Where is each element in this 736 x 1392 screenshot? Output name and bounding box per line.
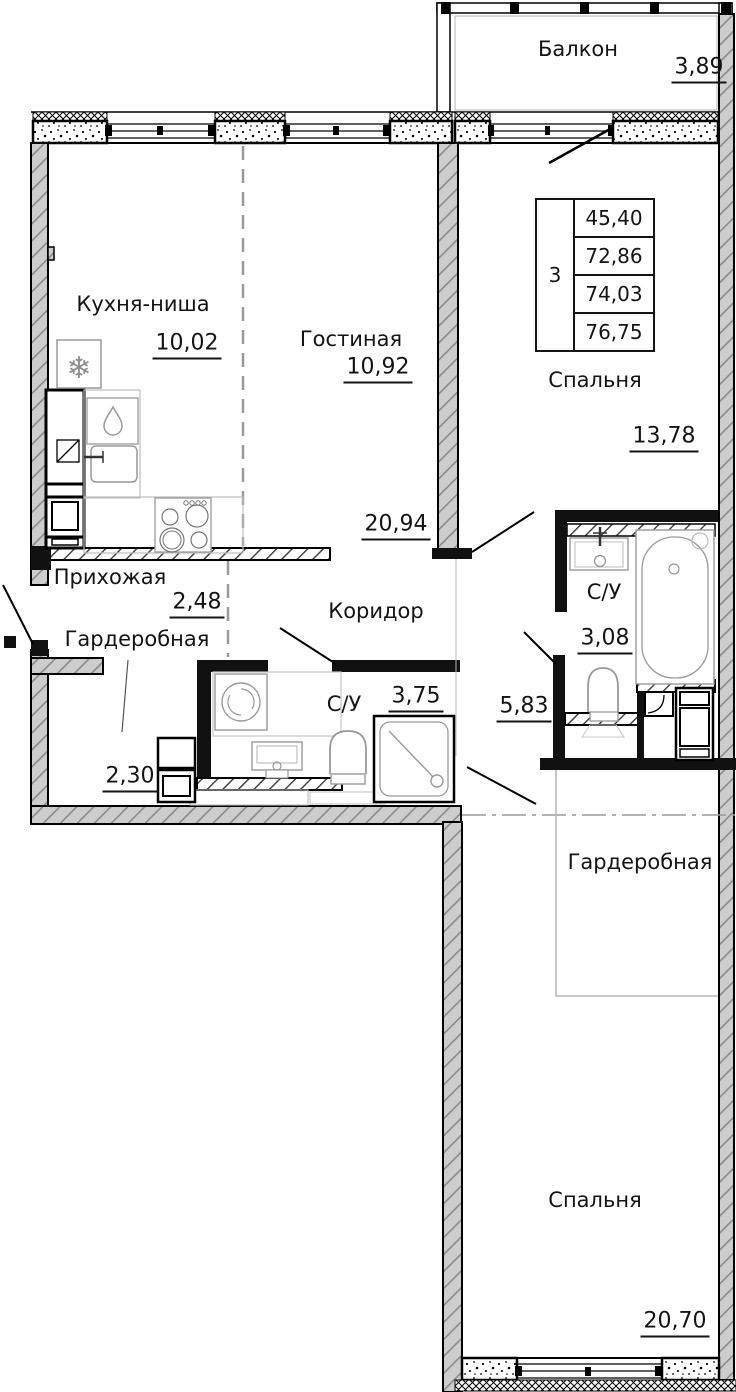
info-table: 3 45,40 72,86 74,03 76,75 (535, 198, 655, 352)
balcony-post (510, 2, 519, 14)
entry-door-swing (3, 585, 33, 644)
bedroom2-label: Спальня (548, 1188, 641, 1212)
floor-plan: ❄ (0, 0, 736, 1392)
wardrobe1-label: Гардеробная (65, 627, 210, 651)
washing-machine (215, 674, 267, 730)
stove (155, 498, 211, 552)
bedroom1-label: Спальня (548, 368, 641, 392)
boiler (87, 398, 138, 444)
balcony-post (441, 2, 450, 14)
kitchen-shaft (46, 390, 84, 548)
kitchen-area: 10,02 (153, 331, 222, 360)
bedroom1-door-swing (472, 512, 534, 552)
kitchen-fixtures: ❄ (46, 340, 243, 553)
bath1-area: 3,75 (389, 684, 444, 713)
wardrobe2-boundary-line (556, 770, 718, 996)
living-area: 10,92 (344, 355, 413, 384)
balcony-label: Балкон (538, 37, 618, 61)
fridge: ❄ (57, 340, 101, 388)
info-table-area-2: 72,86 (574, 237, 654, 275)
balcony-area: 3,89 (672, 55, 727, 84)
shower (374, 716, 454, 802)
bath1-sink (252, 742, 302, 778)
wardrobe1-area: 2,30 (103, 764, 158, 793)
info-table-room-count: 3 (536, 199, 574, 351)
window-bedroom2 (515, 1364, 662, 1378)
bath2-duct-shaft (676, 688, 713, 760)
bath2-label: С/У (587, 580, 622, 604)
hallway-label: Прихожая (54, 565, 166, 589)
top-exterior-wall (31, 112, 734, 163)
suite-door-swing (467, 767, 536, 804)
fridge-snowflake-icon: ❄ (66, 351, 91, 386)
hall2-area: 5,83 (497, 694, 552, 723)
bath2-vent-box (645, 692, 673, 716)
wardrobe1-leader-line (122, 660, 128, 732)
info-table-area-3: 74,03 (574, 275, 654, 313)
hallway-area: 2,48 (170, 590, 225, 619)
balcony-post (650, 2, 659, 14)
bath2-area: 3,08 (578, 626, 633, 655)
bedroom2-area: 20,70 (641, 1309, 710, 1338)
living-label: Гостиная (300, 327, 402, 351)
corridor-label: Коридор (328, 599, 423, 623)
right-exterior-wall (719, 14, 734, 1380)
kitchen-sink (84, 446, 137, 482)
wardrobe2-label: Гардеробная (568, 850, 713, 874)
wardrobe1-shaft (158, 738, 195, 802)
bath2-door-swing (524, 632, 556, 664)
bedroom1-area: 13,78 (630, 424, 699, 453)
kitchen-label: Кухня-ниша (76, 292, 209, 316)
bathtub (636, 530, 714, 684)
bottom-left-exterior-wall (31, 806, 462, 1392)
bath1-door-swing (280, 628, 336, 664)
info-table-area-1: 45,40 (574, 199, 654, 237)
balcony-post (721, 2, 731, 14)
bath1-label: С/У (327, 692, 362, 716)
shower-drain (431, 775, 443, 787)
info-table-area-4: 76,75 (574, 313, 654, 351)
balcony-post (580, 2, 589, 14)
bottom-exterior-wall (455, 1358, 736, 1391)
kitchen-living-zone-area: 20,94 (362, 512, 431, 541)
bath1-threshold (190, 790, 308, 805)
bath2-toilet (582, 668, 624, 737)
